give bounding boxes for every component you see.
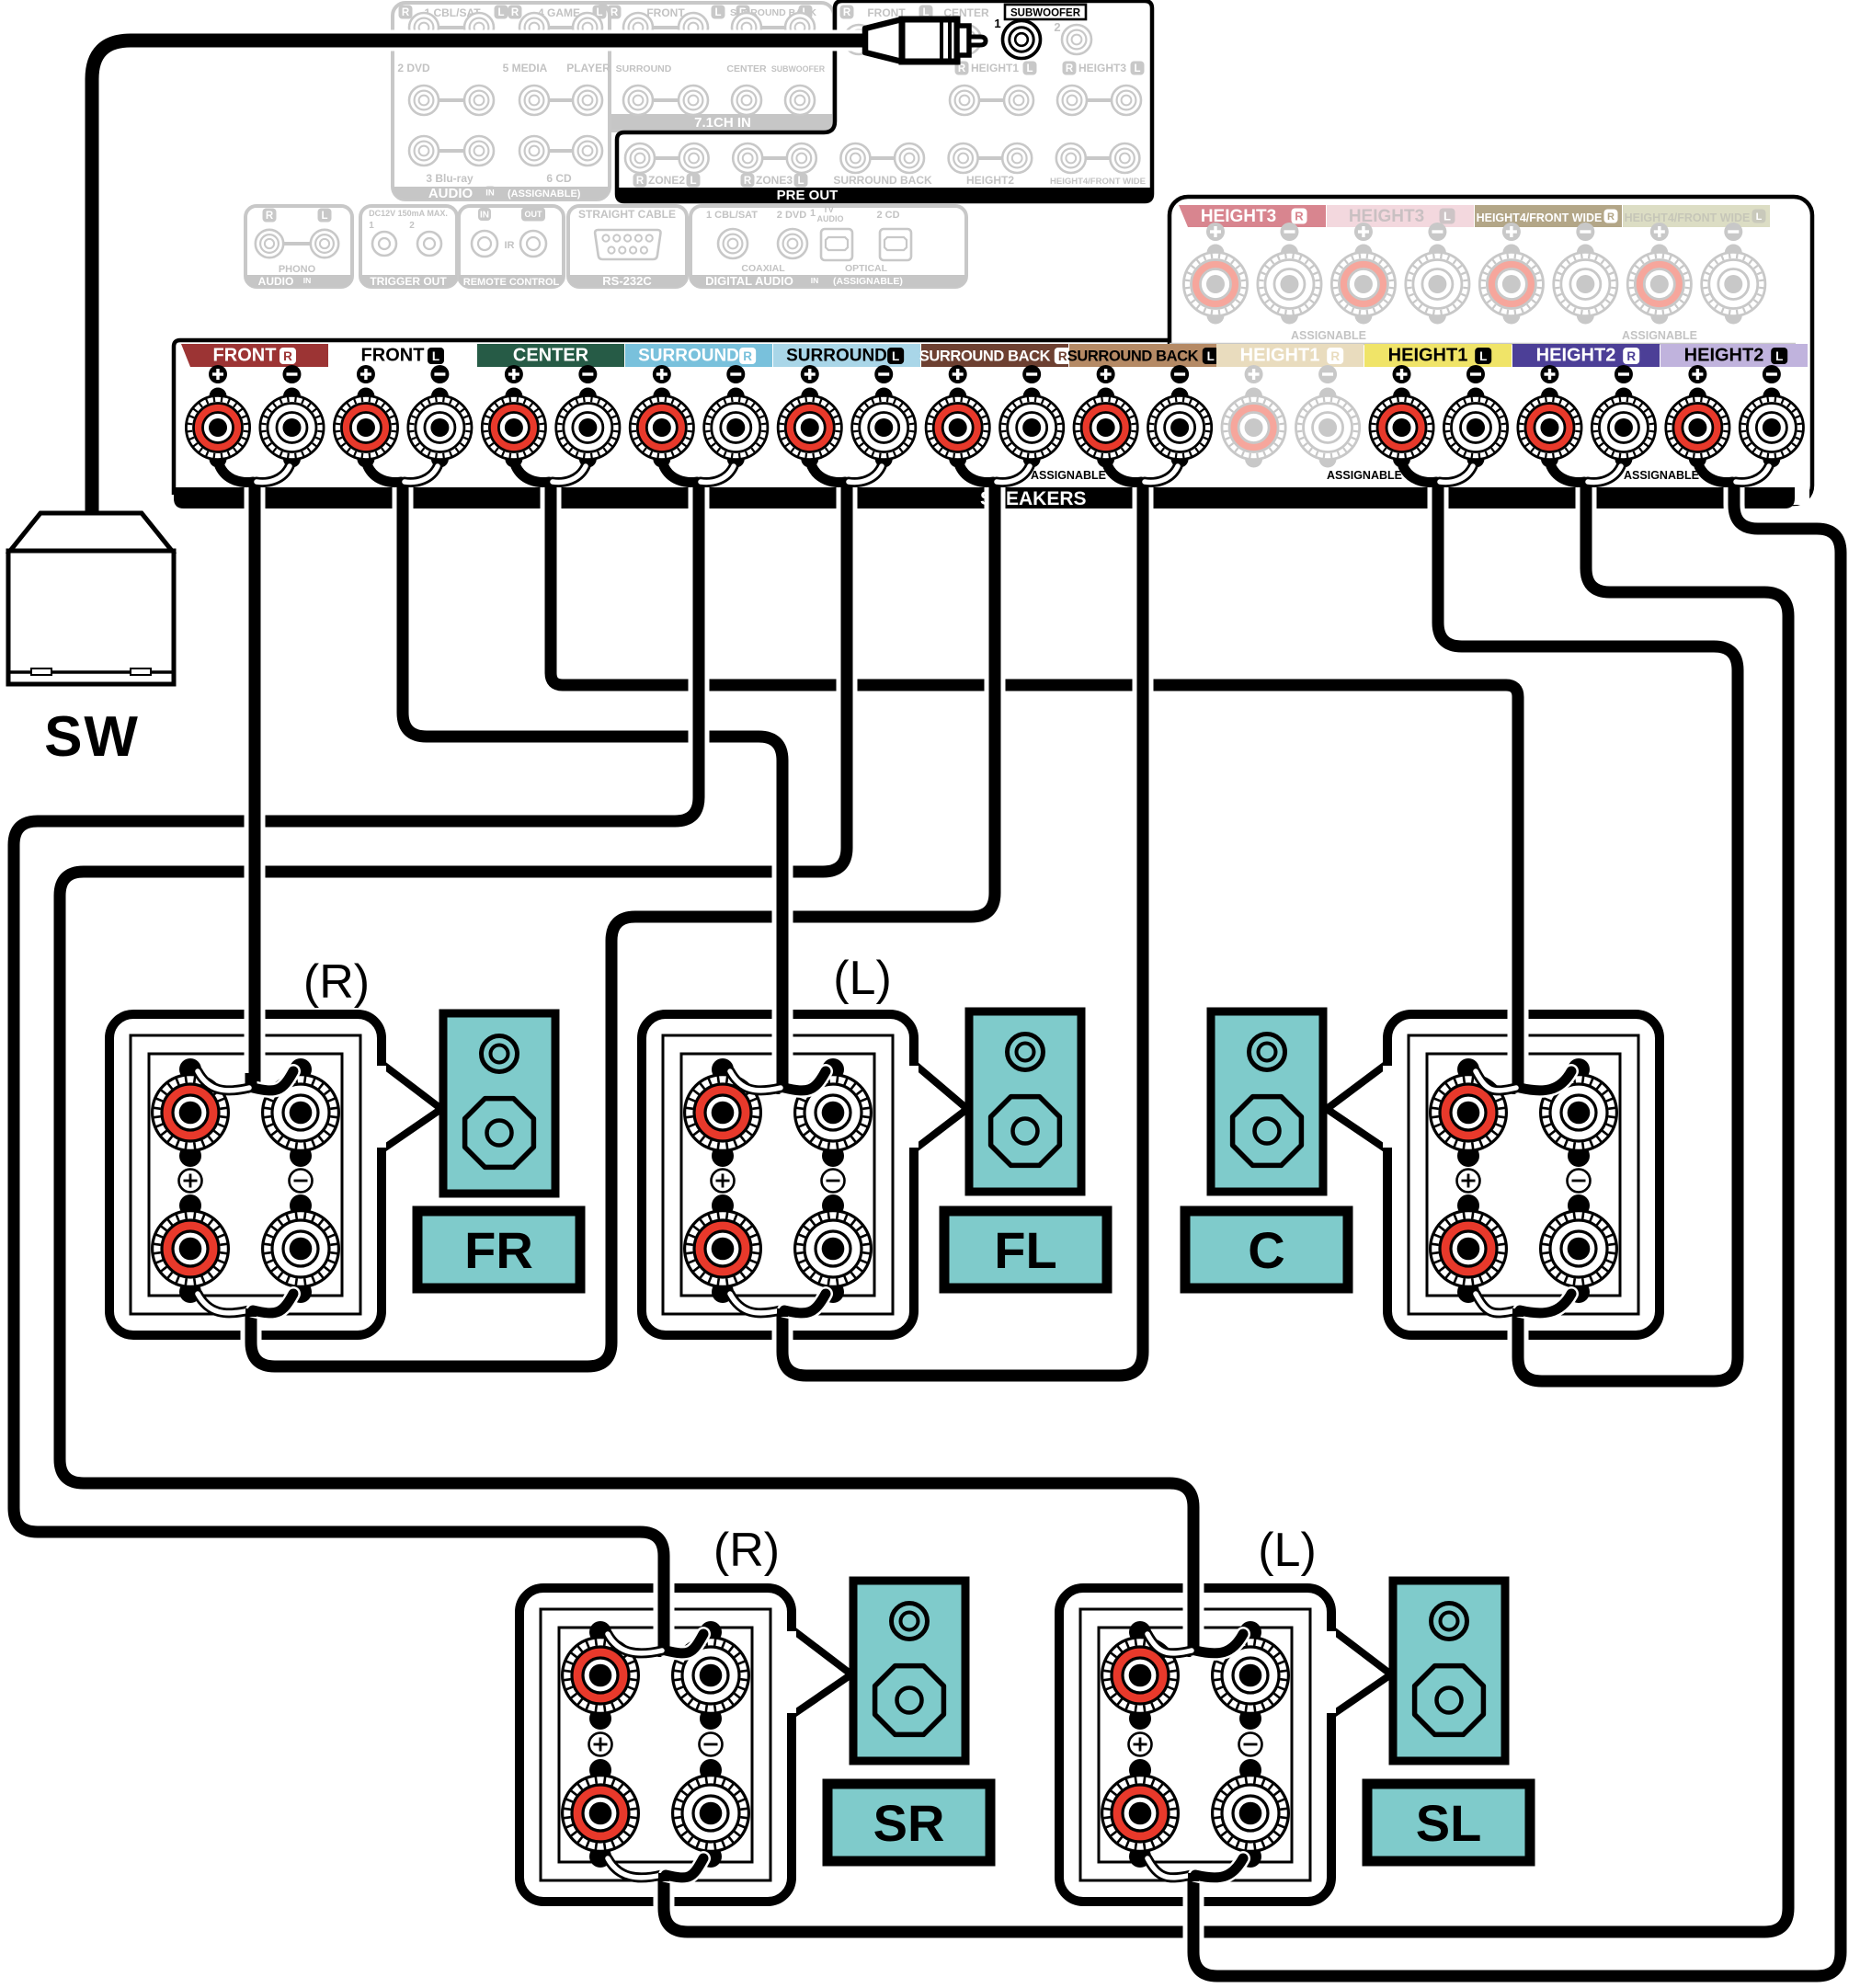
svg-text:ASSIGNABLE: ASSIGNABLE [1291, 329, 1366, 342]
svg-text:2: 2 [1054, 20, 1060, 34]
svg-text:HEIGHT2: HEIGHT2 [1536, 346, 1616, 366]
svg-text:RS-232C: RS-232C [602, 274, 652, 288]
svg-text:L: L [1207, 349, 1215, 363]
svg-text:L: L [892, 349, 899, 363]
svg-text:R: R [511, 7, 519, 18]
svg-text:7.1CH IN: 7.1CH IN [694, 115, 751, 131]
svg-text:C: C [1248, 1221, 1284, 1279]
svg-text:R: R [1607, 211, 1615, 223]
svg-text:(ASSIGNABLE): (ASSIGNABLE) [508, 189, 581, 200]
svg-text:IN: IN [303, 276, 312, 285]
svg-text:SURROUND: SURROUND [638, 347, 739, 366]
svg-text:ASSIGNABLE: ASSIGNABLE [1327, 469, 1402, 482]
svg-text:SR: SR [873, 1794, 945, 1852]
svg-text:HEIGHT1: HEIGHT1 [971, 62, 1019, 74]
svg-text:CENTER: CENTER [513, 346, 589, 366]
svg-text:2 DVD: 2 DVD [397, 62, 430, 74]
svg-text:5 MEDIA: 5 MEDIA [503, 62, 548, 74]
svg-text:(R): (R) [303, 955, 370, 1009]
svg-text:FRONT: FRONT [646, 6, 685, 19]
svg-text:1: 1 [369, 221, 374, 231]
svg-text:2: 2 [409, 221, 415, 231]
svg-text:L: L [432, 349, 439, 363]
svg-text:1: 1 [810, 208, 816, 219]
svg-text:R: R [958, 63, 966, 74]
svg-text:PHONO: PHONO [279, 264, 316, 275]
svg-text:SUBWOOFER: SUBWOOFER [771, 64, 826, 74]
svg-text:SURROUND BACK: SURROUND BACK [833, 174, 932, 187]
svg-text:HEIGHT4/FRONT WIDE: HEIGHT4/FRONT WIDE [1477, 211, 1603, 224]
svg-text:HEIGHT4/FRONT WIDE: HEIGHT4/FRONT WIDE [1625, 211, 1751, 224]
svg-text:HEIGHT1: HEIGHT1 [1240, 346, 1320, 366]
svg-text:(L): (L) [833, 952, 892, 1005]
svg-text:L: L [321, 211, 327, 222]
svg-text:R: R [1330, 349, 1340, 363]
svg-text:HEIGHT1: HEIGHT1 [1388, 346, 1468, 366]
svg-text:HEIGHT3: HEIGHT3 [1078, 62, 1126, 74]
svg-text:R: R [743, 349, 752, 363]
svg-text:COAXIAL: COAXIAL [741, 263, 785, 274]
svg-text:2 DVD: 2 DVD [777, 210, 806, 221]
svg-text:R: R [402, 7, 410, 18]
svg-text:SURROUND: SURROUND [616, 63, 672, 74]
svg-text:R: R [744, 176, 752, 187]
svg-text:2 CD: 2 CD [876, 210, 899, 221]
svg-text:3 Blu-ray: 3 Blu-ray [426, 172, 474, 185]
svg-text:6 CD: 6 CD [546, 172, 572, 185]
svg-text:SURROUND BACK: SURROUND BACK [919, 348, 1051, 365]
svg-text:1 CBL/SAT: 1 CBL/SAT [706, 210, 758, 221]
svg-text:ASSIGNABLE: ASSIGNABLE [1622, 329, 1697, 342]
svg-text:OUT: OUT [525, 210, 543, 219]
svg-text:PRE OUT: PRE OUT [777, 188, 839, 203]
svg-text:AUDIO: AUDIO [817, 214, 844, 223]
svg-text:OPTICAL: OPTICAL [845, 263, 888, 274]
svg-text:R: R [266, 211, 274, 222]
svg-text:L: L [1775, 349, 1783, 363]
svg-text:TV: TV [823, 205, 834, 214]
svg-text:R: R [636, 176, 645, 187]
svg-text:HEIGHT2: HEIGHT2 [966, 174, 1014, 187]
svg-text:IN: IN [485, 188, 495, 198]
svg-text:CENTER: CENTER [726, 63, 767, 74]
svg-text:IR: IR [505, 240, 515, 251]
svg-text:(L): (L) [1258, 1524, 1317, 1577]
svg-text:SURROUND BACK: SURROUND BACK [1067, 348, 1199, 365]
svg-text:FL: FL [994, 1221, 1056, 1279]
svg-text:HEIGHT2: HEIGHT2 [1684, 346, 1764, 366]
svg-text:L: L [1026, 63, 1033, 74]
svg-text:L: L [714, 7, 721, 18]
svg-text:SURROUND: SURROUND [786, 347, 887, 366]
svg-text:SL: SL [1416, 1794, 1482, 1852]
svg-text:REMOTE CONTROL: REMOTE CONTROL [463, 277, 560, 288]
svg-text:R: R [1058, 349, 1067, 363]
svg-text:L: L [797, 176, 804, 187]
svg-text:ZONE2: ZONE2 [648, 174, 685, 187]
svg-text:(R): (R) [713, 1524, 780, 1577]
svg-text:ASSIGNABLE: ASSIGNABLE [1624, 469, 1699, 482]
svg-text:TRIGGER OUT: TRIGGER OUT [370, 275, 447, 288]
svg-text:R: R [610, 7, 619, 18]
svg-text:DIGITAL AUDIO: DIGITAL AUDIO [705, 274, 793, 288]
svg-text:AUDIO: AUDIO [428, 186, 474, 201]
svg-text:SW: SW [44, 705, 140, 769]
svg-text:L: L [497, 7, 504, 18]
svg-text:IN: IN [811, 276, 819, 285]
svg-text:AUDIO: AUDIO [258, 275, 294, 288]
svg-text:HEIGHT4/FRONT WIDE: HEIGHT4/FRONT WIDE [1050, 177, 1146, 187]
svg-text:L: L [1443, 210, 1451, 223]
svg-text:1: 1 [994, 17, 1000, 30]
svg-text:L: L [1134, 63, 1140, 74]
svg-text:R: R [283, 349, 292, 363]
svg-text:SUBWOOFER: SUBWOOFER [1010, 8, 1081, 19]
svg-text:ASSIGNABLE: ASSIGNABLE [1031, 469, 1106, 482]
svg-text:FRONT: FRONT [361, 346, 425, 366]
svg-text:FRONT: FRONT [213, 346, 277, 366]
svg-text:R: R [1626, 349, 1636, 363]
svg-text:R: R [1066, 63, 1074, 74]
svg-text:DC12V 150mA MAX.: DC12V 150mA MAX. [369, 209, 448, 218]
svg-text:L: L [690, 176, 696, 187]
svg-text:ZONE3: ZONE3 [756, 174, 793, 187]
svg-text:L: L [1756, 211, 1763, 223]
svg-text:IN: IN [480, 211, 489, 221]
svg-text:PLAYER: PLAYER [566, 62, 610, 74]
svg-text:STRAIGHT CABLE: STRAIGHT CABLE [578, 208, 676, 221]
svg-text:FR: FR [464, 1221, 533, 1279]
svg-text:R: R [1295, 210, 1304, 223]
svg-text:R: R [843, 7, 851, 18]
svg-text:L: L [1479, 349, 1487, 363]
svg-text:(ASSIGNABLE): (ASSIGNABLE) [833, 276, 903, 287]
